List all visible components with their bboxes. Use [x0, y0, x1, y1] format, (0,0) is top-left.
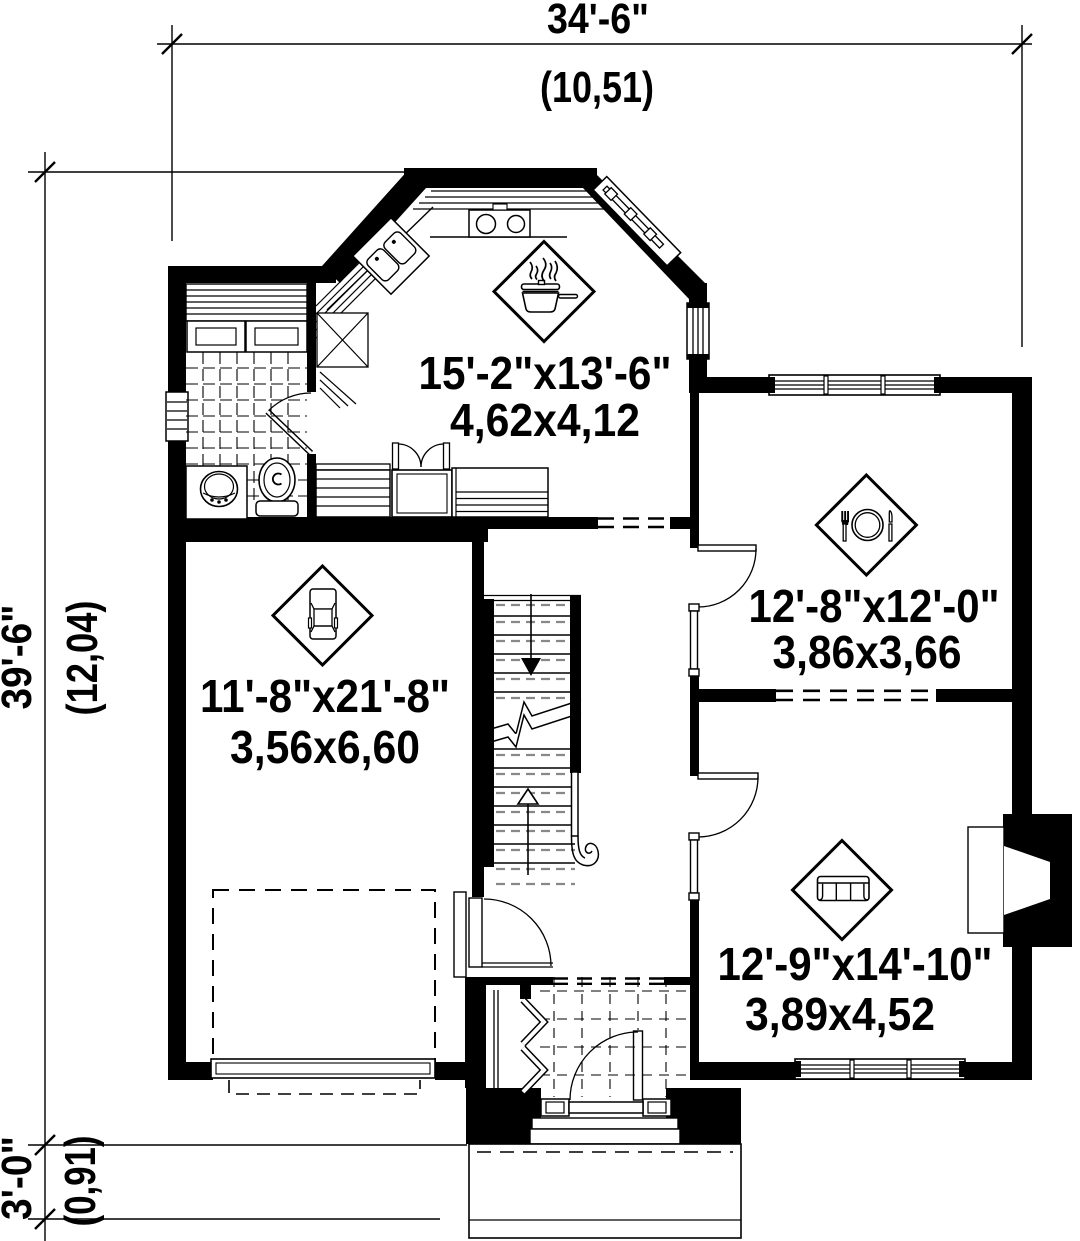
svg-text:3'-0": 3'-0" — [0, 1136, 41, 1220]
svg-text:3,89x4,52: 3,89x4,52 — [745, 988, 935, 1040]
svg-text:(0,91): (0,91) — [56, 1136, 105, 1227]
svg-text:39'-6": 39'-6" — [0, 605, 41, 710]
svg-text:11'-8"x21'-8": 11'-8"x21'-8" — [200, 670, 450, 722]
svg-text:(10,51): (10,51) — [540, 63, 654, 112]
svg-text:12'-9"x14'-10": 12'-9"x14'-10" — [718, 938, 993, 990]
svg-text:(12,04): (12,04) — [58, 601, 107, 716]
svg-text:34'-6": 34'-6" — [547, 0, 649, 43]
svg-text:4,62x4,12: 4,62x4,12 — [450, 394, 640, 446]
svg-text:15'-2"x13'-6": 15'-2"x13'-6" — [419, 347, 672, 399]
svg-text:3,86x3,66: 3,86x3,66 — [773, 626, 962, 678]
svg-text:3,56x6,60: 3,56x6,60 — [230, 721, 420, 773]
svg-text:12'-8"x12'-0": 12'-8"x12'-0" — [749, 580, 1000, 632]
